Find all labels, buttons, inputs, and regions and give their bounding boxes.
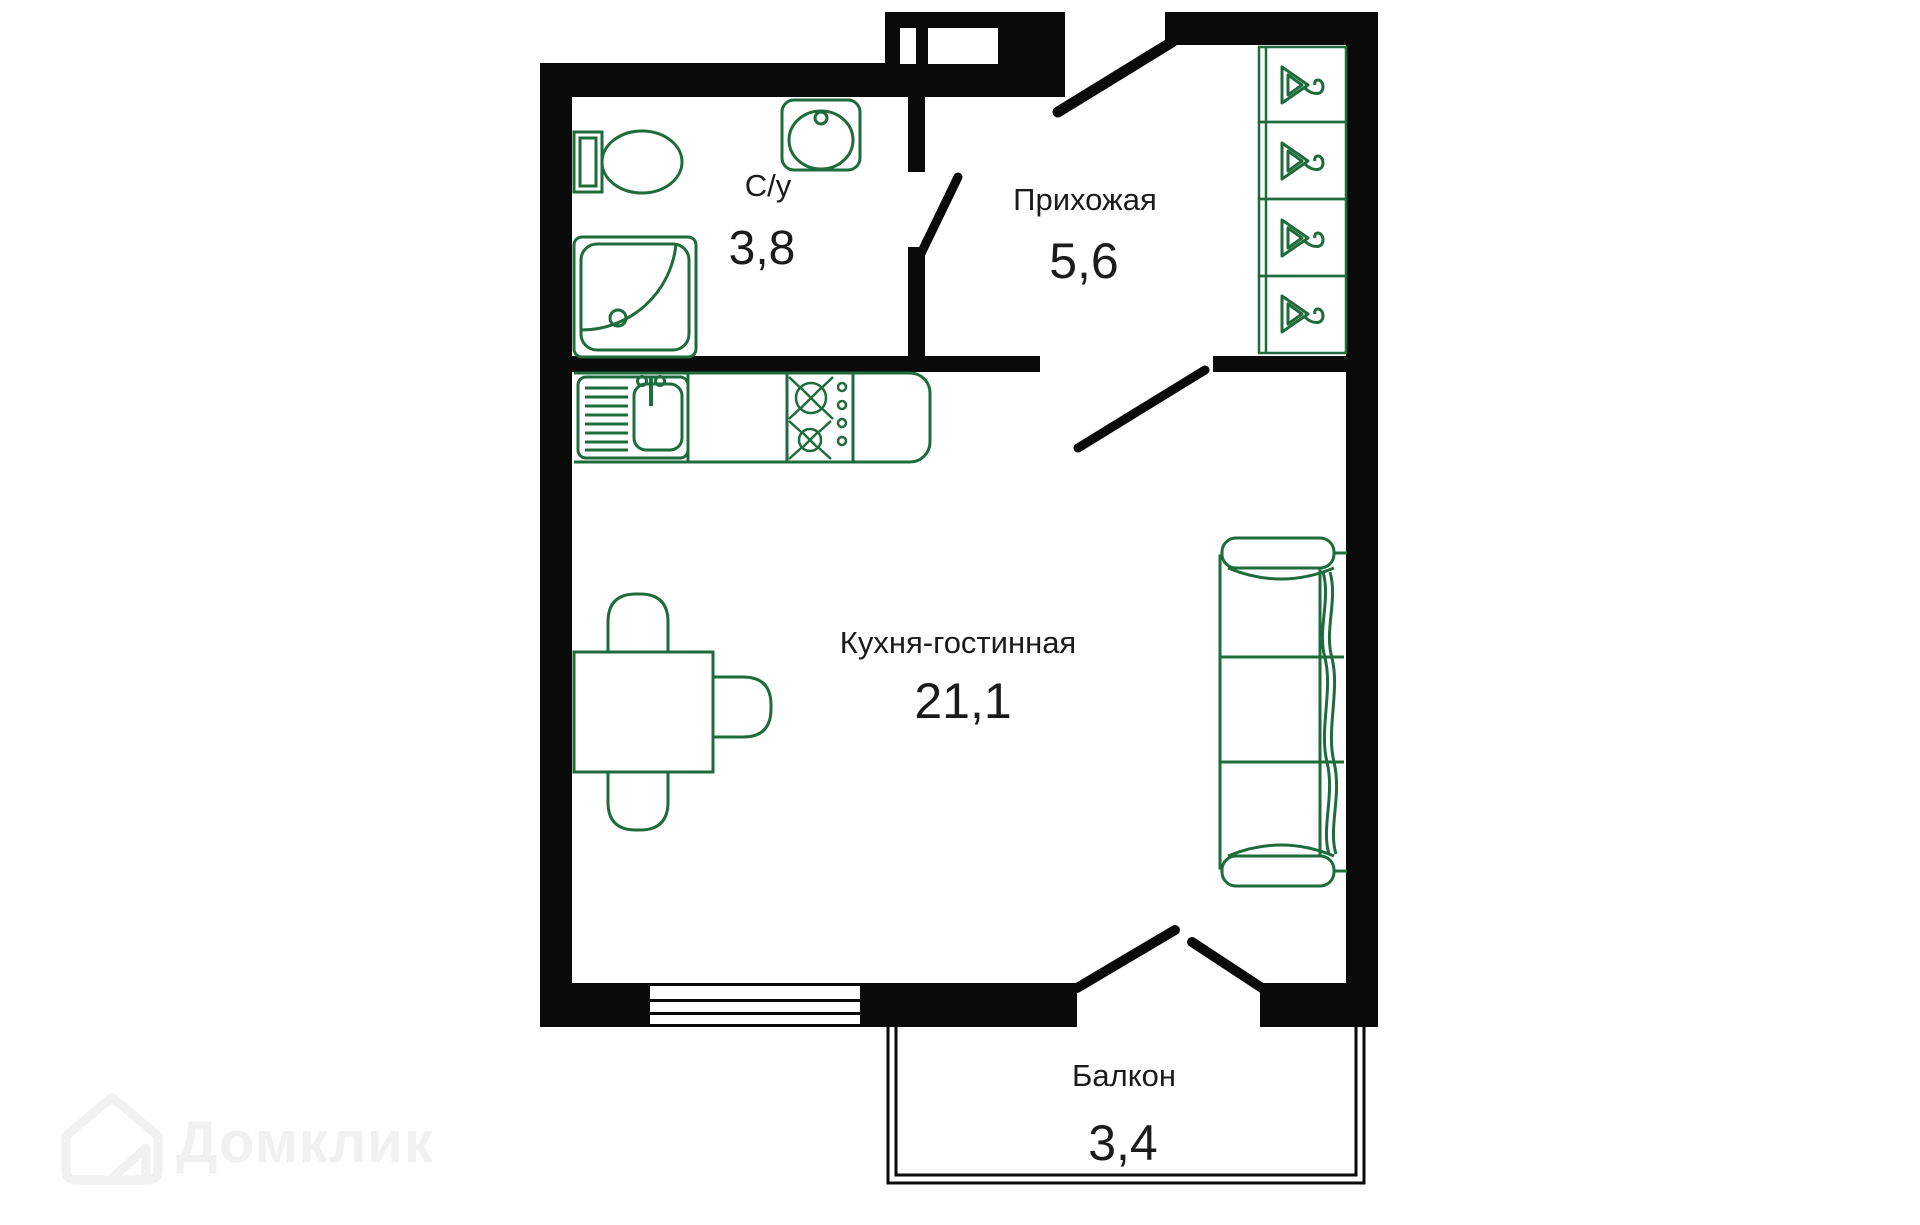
- kitchen-sink-icon: [578, 377, 688, 459]
- dining-table-icon: [574, 652, 713, 772]
- chair-bottom-icon: [608, 772, 668, 830]
- bathroom-sink-icon: [782, 100, 860, 170]
- room-area-hallway: 5,6: [1049, 233, 1119, 289]
- house-logo-icon: [66, 1097, 158, 1180]
- room-area-kitchen-living: 21,1: [914, 673, 1011, 729]
- window-icon: [650, 983, 860, 1027]
- sofa-icon: [1220, 538, 1347, 886]
- domklik-watermark: Домклик: [66, 1097, 434, 1180]
- floor-plan-svg: С/у 3,8 Прихожая 5,6 Кухня-гостинная 21,…: [0, 0, 1920, 1225]
- entrance-threshold: [900, 28, 998, 64]
- room-label-kitchen-living: Кухня-гостинная: [840, 625, 1076, 660]
- shower-icon: [574, 237, 696, 357]
- hanger-icon: [1282, 220, 1323, 256]
- hanger-icon: [1282, 143, 1323, 179]
- toilet-icon: [574, 131, 682, 193]
- bathroom-door-icon: [913, 177, 958, 270]
- wardrobe: [1259, 47, 1346, 353]
- room-label-balcony: Балкон: [1072, 1058, 1176, 1093]
- room-area-bathroom: 3,8: [729, 222, 796, 275]
- floor-plan: С/у 3,8 Прихожая 5,6 Кухня-гостинная 21,…: [0, 0, 1920, 1225]
- balcony-door-right-icon: [1192, 942, 1262, 988]
- chair-right-icon: [713, 677, 771, 737]
- room-area-balcony: 3,4: [1088, 1115, 1158, 1171]
- hallway-door-icon: [1078, 370, 1205, 448]
- room-label-bathroom: С/у: [745, 168, 792, 203]
- hanger-icon: [1282, 67, 1323, 103]
- chair-top-icon: [608, 594, 668, 652]
- balcony-door-left-icon: [1077, 930, 1175, 988]
- entrance-door-icon: [1058, 42, 1172, 112]
- watermark-text: Домклик: [176, 1110, 434, 1175]
- hanger-icon: [1282, 296, 1323, 332]
- stove-icon: [789, 377, 846, 459]
- room-label-hallway: Прихожая: [1013, 182, 1157, 217]
